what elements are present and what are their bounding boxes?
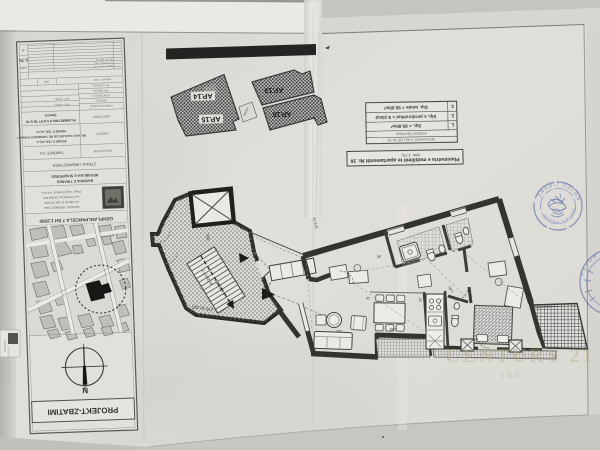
svg-text:N: N (82, 386, 88, 395)
svg-text:Sip. = 80.80m²: Sip. = 80.80m² (390, 123, 421, 129)
svg-text:3.: 3. (450, 104, 454, 109)
svg-text:(banim): (banim) (45, 113, 57, 117)
svg-text:2.: 2. (450, 113, 454, 118)
svg-text:ESANDO SCONYEH: ESANDO SCONYEH (6, 347, 11, 385)
svg-text:AP.14: AP.14 (193, 92, 212, 102)
svg-text:Ambjent Siperfaqe: Ambjent Siperfaqe (396, 131, 427, 136)
svg-text:OBJEKTI: OBJEKTI (96, 131, 109, 135)
svg-text:tash: tash (43, 80, 49, 84)
svg-text:DREJTORIA: DREJTORIA (93, 114, 110, 119)
svg-text:1.: 1. (451, 122, 455, 127)
svg-text:perpunoi / data: perpunoi / data (93, 78, 111, 83)
svg-text:AP.13: AP.13 (264, 86, 283, 96)
svg-text:INVESTITOR: INVESTITOR (93, 149, 112, 154)
svg-text:SK2 - Studio: SK2 - Studio (54, 97, 70, 102)
svg-text:FIRMA DIGJITALE: FIRMA DIGJITALE (90, 104, 113, 109)
svg-text:355: 355 (335, 329, 342, 334)
svg-text:Sip. e perdorshkat = 9.10m2: Sip. e perdorshkat = 9.10m2 (375, 114, 436, 120)
svg-text:1:200: 1:200 (20, 66, 28, 70)
svg-text:Nr. LICENCES: Nr. LICENCES (92, 83, 110, 88)
svg-text:16: 16 (366, 296, 370, 300)
svg-text:Apartamenti 2+K(+1B) Nr.16: Apartamenti 2+K(+1B) Nr.16 (387, 137, 435, 142)
svg-text:CENTURY 21: CENTURY 21 (445, 345, 595, 367)
svg-text:AP.16: AP.16 (272, 110, 291, 120)
svg-text:MIRATOI: MIRATOI (95, 99, 106, 103)
svg-text:AP.15: AP.15 (201, 115, 220, 125)
svg-text:87: 87 (418, 297, 422, 301)
svg-text:IRD: IRD (501, 370, 524, 380)
svg-text:dat. nentor 2006: dat. nentor 2006 (94, 64, 114, 69)
svg-text:Sip. totale = 90.00m²: Sip. totale = 90.00m² (383, 105, 428, 111)
svg-text:KONTROLLOI: KONTROLLOI (92, 93, 110, 98)
svg-text:1:75: 1:75 (19, 58, 29, 63)
svg-text:240: 240 (389, 327, 396, 332)
svg-text:SK2 - Studio: SK2 - Studio (54, 103, 70, 108)
svg-text:PROJEKTOI: PROJEKTOI (93, 88, 109, 93)
